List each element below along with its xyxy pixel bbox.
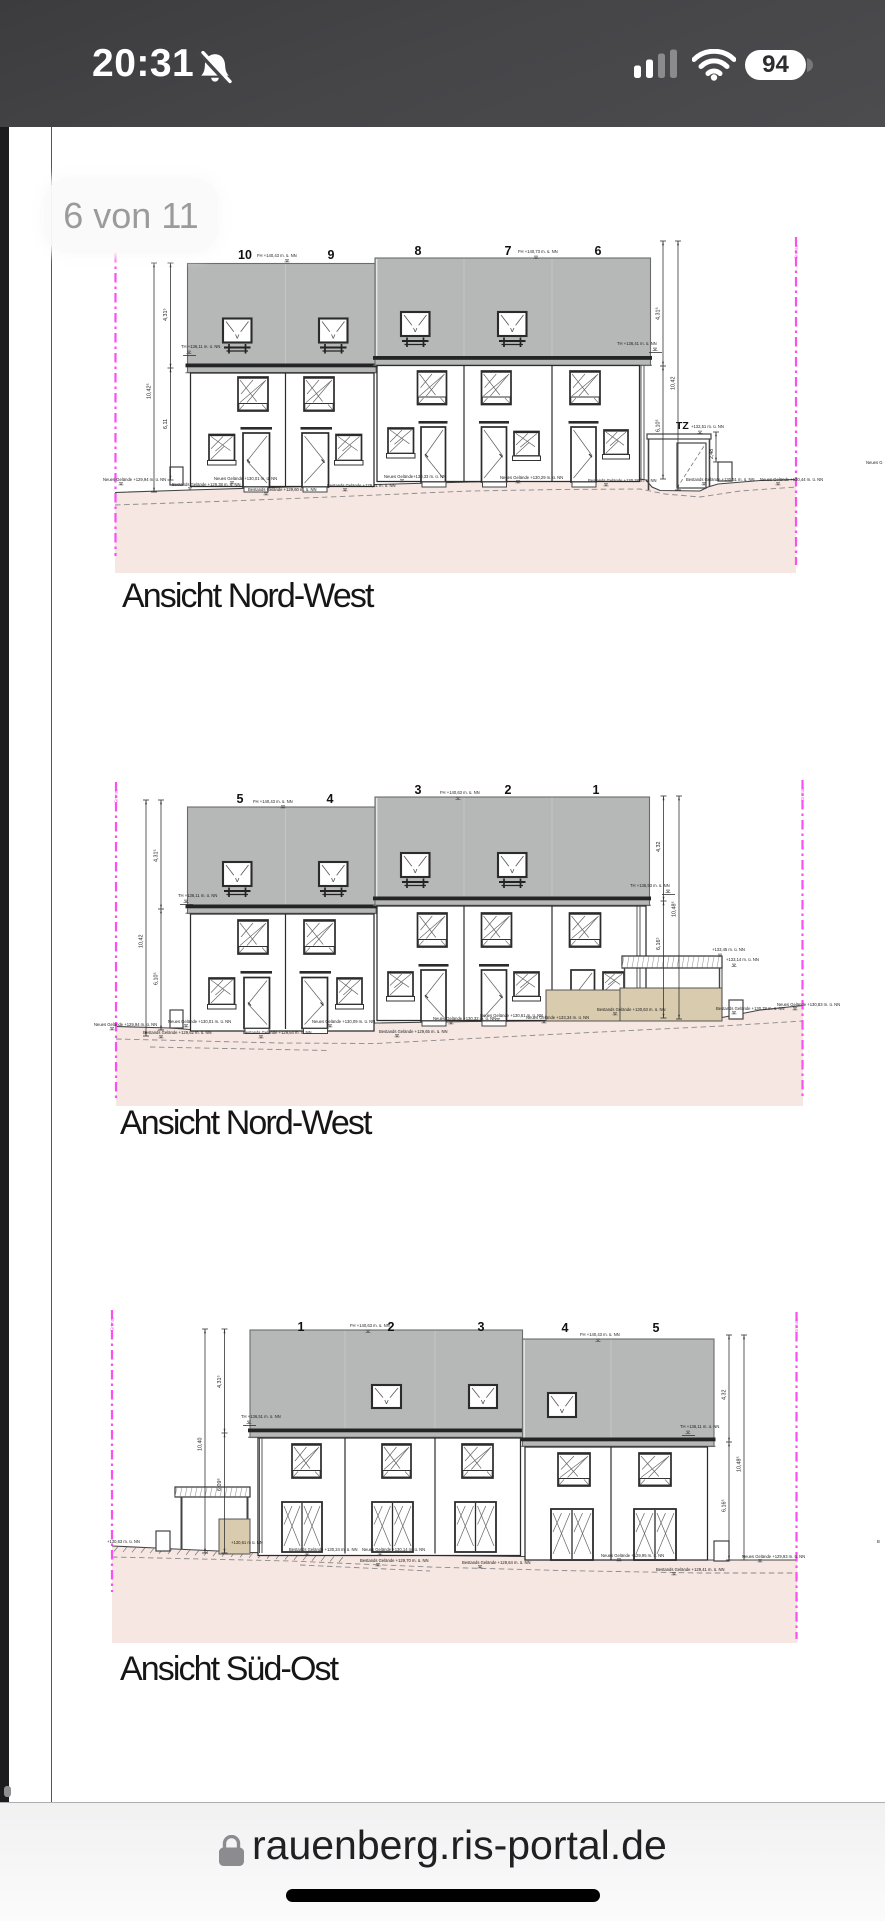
svg-text:3: 3 <box>415 783 422 797</box>
svg-text:4: 4 <box>562 1321 569 1335</box>
svg-text:8: 8 <box>415 244 422 258</box>
svg-text:4,31⁶: 4,31⁶ <box>656 307 662 320</box>
svg-text:10,42⁵: 10,42⁵ <box>147 383 153 399</box>
svg-text:4: 4 <box>327 792 334 806</box>
svg-text:6,10⁵: 6,10⁵ <box>656 419 662 432</box>
svg-text:Bestands Gelände +129,38 m. ü.: Bestands Gelände +129,38 m. ü. NN <box>172 482 241 487</box>
svg-text:1: 1 <box>593 783 600 797</box>
svg-text:+130,61 m ü. NN: +130,61 m ü. NN <box>231 1540 263 1545</box>
svg-text:TH +136,41 m. ü. NN: TH +136,41 m. ü. NN <box>617 341 657 346</box>
svg-text:FH +140,63 m. ü. NN: FH +140,63 m. ü. NN <box>350 1323 390 1328</box>
svg-text:6,11: 6,11 <box>163 419 169 429</box>
svg-text:Bestands Gelände +129,60 m. ü.: Bestands Gelände +129,60 m. ü. NN <box>248 487 317 492</box>
svg-text:Neues Gelände +129,94 m. ü. NN: Neues Gelände +129,94 m. ü. NN <box>103 477 166 482</box>
svg-text:7: 7 <box>505 244 512 258</box>
svg-text:Bestands Gelände +129,41 m. ü.: Bestands Gelände +129,41 m. ü. NN <box>656 1567 725 1572</box>
svg-text:4,31⁵: 4,31⁵ <box>217 1375 223 1388</box>
svg-text:Neues Gelände +130,44 m. ü. NN: Neues Gelände +130,44 m. ü. NN <box>760 477 823 482</box>
svg-text:+130,63 m. ü. NN: +130,63 m. ü. NN <box>107 1539 140 1544</box>
svg-text:TH +136,11 m. ü. NN: TH +136,11 m. ü. NN <box>680 1424 719 1429</box>
svg-text:Bestands Gelände +129,61 m. ü.: Bestands Gelände +129,61 m. ü. NN <box>327 483 396 488</box>
svg-text:Neues G: Neues G <box>866 460 883 465</box>
svg-text:Neues Gelände +129,95 m. ü. NN: Neues Gelände +129,95 m. ü. NN <box>601 1553 664 1558</box>
svg-text:Bestands Gelände +130,51 m. ü.: Bestands Gelände +130,51 m. ü. NN <box>686 477 755 482</box>
svg-text:Neues Gelände +129,94 m. ü. NN: Neues Gelände +129,94 m. ü. NN <box>94 1022 157 1027</box>
svg-text:TH +136,51 m. ü. NN: TH +136,51 m. ü. NN <box>241 1414 281 1419</box>
svg-text:2: 2 <box>505 783 512 797</box>
svg-text:Neues Gelände +130,01 m. ü. NN: Neues Gelände +130,01 m. ü. NN <box>214 476 277 481</box>
svg-text:10,40: 10,40 <box>198 1438 204 1452</box>
svg-text:9: 9 <box>328 248 335 262</box>
svg-text:Bestands Gelände +129,64 m. ü.: Bestands Gelände +129,64 m. ü. NN <box>462 1560 531 1565</box>
svg-text:Neues Gelände +133,34 m. ü. NN: Neues Gelände +133,34 m. ü. NN <box>526 1015 589 1020</box>
svg-text:Bestands Gelände +130,78 m. ü.: Bestands Gelände +130,78 m. ü. NN <box>716 1006 785 1011</box>
svg-text:1: 1 <box>298 1320 305 1334</box>
svg-text:Bestands Gelände +130,28 m. ü.: Bestands Gelände +130,28 m. ü. NN <box>588 478 657 483</box>
svg-text:6,09⁶: 6,09⁶ <box>217 1478 223 1491</box>
svg-text:Bestands Gelände +129,65 m. ü.: Bestands Gelände +129,65 m. ü. NN <box>379 1029 448 1034</box>
svg-text:4,31⁵: 4,31⁵ <box>154 849 160 862</box>
svg-text:FH +140,63 m. ü. NN: FH +140,63 m. ü. NN <box>440 790 480 795</box>
svg-text:Ansicht Süd-Ost: Ansicht Süd-Ost <box>120 1650 340 1688</box>
svg-text:Ansicht Nord-West: Ansicht Nord-West <box>122 577 375 615</box>
svg-text:4,32: 4,32 <box>722 1390 728 1401</box>
svg-text:10,48⁵: 10,48⁵ <box>672 901 678 917</box>
svg-text:Grenze: Grenze <box>794 244 799 259</box>
svg-text:2,48: 2,48 <box>709 449 715 459</box>
svg-text:+132,51 m. ü. NN: +132,51 m. ü. NN <box>691 424 724 429</box>
svg-text:FH +140,43 m. ü. NN: FH +140,43 m. ü. NN <box>257 253 297 258</box>
svg-text:Grenze: Grenze <box>110 1316 115 1331</box>
svg-text:10,42: 10,42 <box>139 935 145 949</box>
svg-text:6: 6 <box>595 244 602 258</box>
svg-text:Neues Gelände +130,14 m. ü. NN: Neues Gelände +130,14 m. ü. NN <box>362 1547 425 1552</box>
svg-text:5: 5 <box>653 1321 660 1335</box>
svg-text:4,32: 4,32 <box>656 842 662 853</box>
svg-text:2: 2 <box>388 1320 395 1334</box>
svg-text:6,16⁵: 6,16⁵ <box>722 1499 728 1512</box>
svg-text:10,42: 10,42 <box>671 377 677 391</box>
svg-text:Bestands Gelände +129,70 m. ü.: Bestands Gelände +129,70 m. ü. NN <box>360 1558 429 1563</box>
svg-text:FH +140,73 m. ü. NN: FH +140,73 m. ü. NN <box>518 249 558 254</box>
svg-text:10: 10 <box>238 248 252 262</box>
svg-text:TH +136,11 m. ü. NN: TH +136,11 m. ü. NN <box>181 344 220 349</box>
svg-text:TH +136,93 m. ü. NN: TH +136,93 m. ü. NN <box>630 883 670 888</box>
svg-text:FH +140,43 m. ü. NN: FH +140,43 m. ü. NN <box>253 799 293 804</box>
svg-text:Neues Gelände +130,29 m. ü. NN: Neues Gelände +130,29 m. ü. NN <box>500 475 563 480</box>
svg-text:5: 5 <box>237 792 244 806</box>
svg-text:Neues Gelände +129,93 m. ü. NN: Neues Gelände +129,93 m. ü. NN <box>742 1554 805 1559</box>
svg-text:+133,14 m. ü. NN: +133,14 m. ü. NN <box>726 957 759 962</box>
svg-text:FH +140,43 m. ü. NN: FH +140,43 m. ü. NN <box>580 1332 620 1337</box>
svg-text:4,31⁵: 4,31⁵ <box>163 308 169 321</box>
svg-text:Grenze: Grenze <box>800 786 805 801</box>
svg-text:Bestands Gelände +130,24 m. ü.: Bestands Gelände +130,24 m. ü. NN <box>289 1547 358 1552</box>
svg-text:Grenze: Grenze <box>114 788 119 803</box>
svg-text:6,16⁵: 6,16⁵ <box>656 937 662 950</box>
svg-text:Ansicht Nord-West: Ansicht Nord-West <box>120 1104 373 1142</box>
svg-text:Neues Gelände+130,33 m. ü. NN: Neues Gelände+130,33 m. ü. NN <box>384 474 446 479</box>
svg-text:Bestands Gelände +129,62 m. ü.: Bestands Gelände +129,62 m. ü. NN <box>143 1030 212 1035</box>
svg-text:10,48⁵: 10,48⁵ <box>737 1456 743 1472</box>
svg-text:Bestands Gelände +129,64 m. ü.: Bestands Gelände +129,64 m. ü. NN <box>243 1030 312 1035</box>
svg-text:Neues Gelände +130,83 m. ü. NN: Neues Gelände +130,83 m. ü. NN <box>777 1002 840 1007</box>
svg-text:3: 3 <box>478 1320 485 1334</box>
svg-text:+133,45 m. ü. NN: +133,45 m. ü. NN <box>712 947 745 952</box>
svg-text:TH +136,11 m. ü. NN: TH +136,11 m. ü. NN <box>178 893 217 898</box>
svg-text:Neues Gelände +130,09 m. ü. NN: Neues Gelände +130,09 m. ü. NN <box>312 1019 375 1024</box>
svg-text:Bestands Gelände +130,63 m. ü.: Bestands Gelände +130,63 m. ü. NN <box>597 1007 666 1012</box>
svg-text:Neues Gelände +130,01 m. ü. NN: Neues Gelände +130,01 m. ü. NN <box>168 1019 231 1024</box>
svg-text:Grenze: Grenze <box>794 1318 799 1333</box>
svg-text:6,10⁵: 6,10⁵ <box>154 972 160 985</box>
svg-text:B: B <box>877 1539 880 1544</box>
